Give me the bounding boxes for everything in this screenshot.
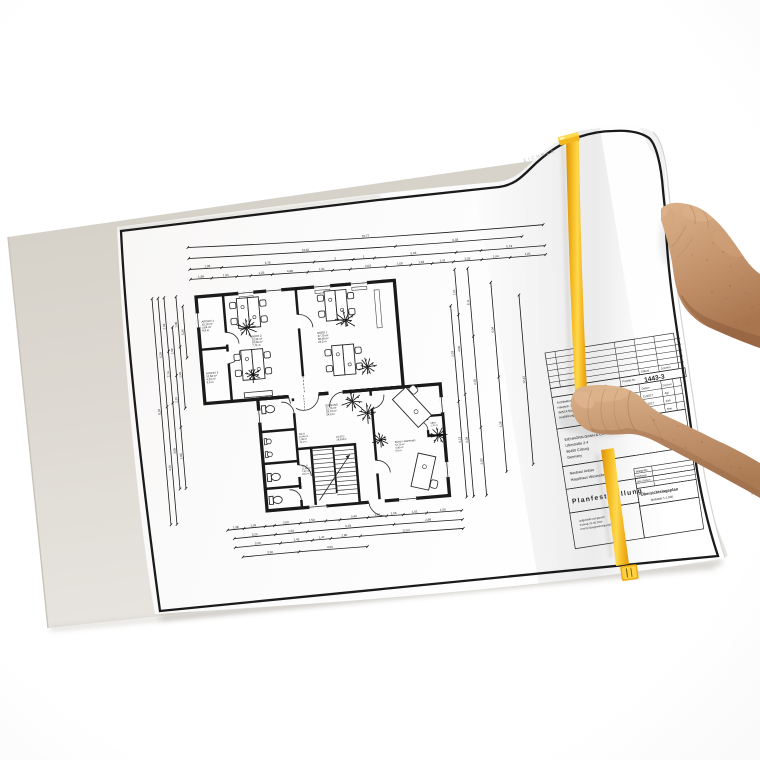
svg-text:1,38: 1,38 [204, 264, 210, 269]
svg-text:6,13: 6,13 [457, 436, 462, 442]
svg-text:2,06: 2,06 [391, 511, 397, 516]
svg-text:1,00: 1,00 [397, 261, 403, 266]
svg-text:8,11: 8,11 [466, 299, 470, 305]
svg-text:2,03: 2,03 [450, 350, 455, 356]
svg-text:4,26: 4,26 [168, 465, 173, 471]
svg-text:1,94: 1,94 [418, 260, 424, 265]
svg-text:1,25: 1,25 [258, 271, 264, 276]
svg-text:6,28: 6,28 [498, 421, 503, 427]
svg-text:6,19: 6,19 [345, 524, 351, 529]
svg-text:2,03: 2,03 [464, 256, 470, 261]
svg-text:13,32: 13,32 [301, 248, 309, 253]
svg-text:5,26: 5,26 [180, 329, 185, 335]
svg-text:1,60: 1,60 [178, 372, 183, 378]
svg-text:4,98: 4,98 [287, 269, 293, 274]
svg-text:12,02: 12,02 [402, 528, 410, 533]
svg-text:3,30: 3,30 [267, 550, 273, 555]
svg-text:1,03: 1,03 [250, 523, 256, 528]
svg-text:2,03: 2,03 [365, 264, 371, 269]
svg-text:6,04: 6,04 [464, 436, 469, 442]
svg-text:1,50: 1,50 [440, 507, 446, 512]
svg-text:1,01: 1,01 [452, 289, 457, 295]
svg-text:2,26: 2,26 [174, 397, 179, 403]
svg-text:1,53: 1,53 [288, 529, 294, 534]
svg-text:1,47: 1,47 [318, 535, 324, 540]
svg-text:2,14: 2,14 [166, 371, 171, 377]
svg-text:1,01: 1,01 [319, 267, 325, 272]
svg-text:1,38: 1,38 [233, 525, 239, 530]
svg-text:3,05: 3,05 [172, 448, 177, 454]
svg-text:4,00: 4,00 [457, 346, 462, 352]
svg-text:2,00: 2,00 [283, 520, 289, 525]
svg-text:4,50: 4,50 [327, 545, 333, 550]
svg-text:2,86: 2,86 [341, 533, 347, 538]
svg-text:2,04: 2,04 [162, 323, 167, 329]
svg-text:AgI: AgI [664, 391, 669, 396]
svg-text:1,50: 1,50 [309, 518, 315, 523]
svg-text:4,76: 4,76 [265, 260, 271, 265]
svg-text:2,39: 2,39 [473, 379, 478, 385]
svg-text:1,01: 1,01 [412, 509, 418, 514]
svg-text:1,38: 1,38 [198, 274, 204, 279]
svg-text:2,00: 2,00 [479, 458, 484, 464]
svg-text:1,00: 1,00 [179, 453, 184, 459]
svg-text:6,04: 6,04 [490, 326, 495, 332]
svg-text:6,26: 6,26 [158, 352, 163, 358]
svg-text:1,43: 1,43 [293, 537, 299, 542]
svg-text:1,01: 1,01 [440, 258, 446, 263]
svg-text:3,20: 3,20 [252, 532, 258, 537]
svg-text:8,28: 8,28 [157, 409, 162, 415]
svg-text:3,49: 3,49 [351, 514, 357, 519]
svg-text:6,03: 6,03 [452, 237, 458, 242]
svg-text:2,98: 2,98 [425, 517, 431, 522]
svg-text:1,00: 1,00 [174, 321, 179, 327]
svg-text:1,60: 1,60 [170, 348, 175, 354]
svg-text:3,20: 3,20 [255, 541, 261, 546]
svg-text:6,03: 6,03 [410, 251, 416, 256]
svg-text:15,77: 15,77 [362, 234, 370, 239]
svg-text:1,01: 1,01 [223, 273, 229, 278]
